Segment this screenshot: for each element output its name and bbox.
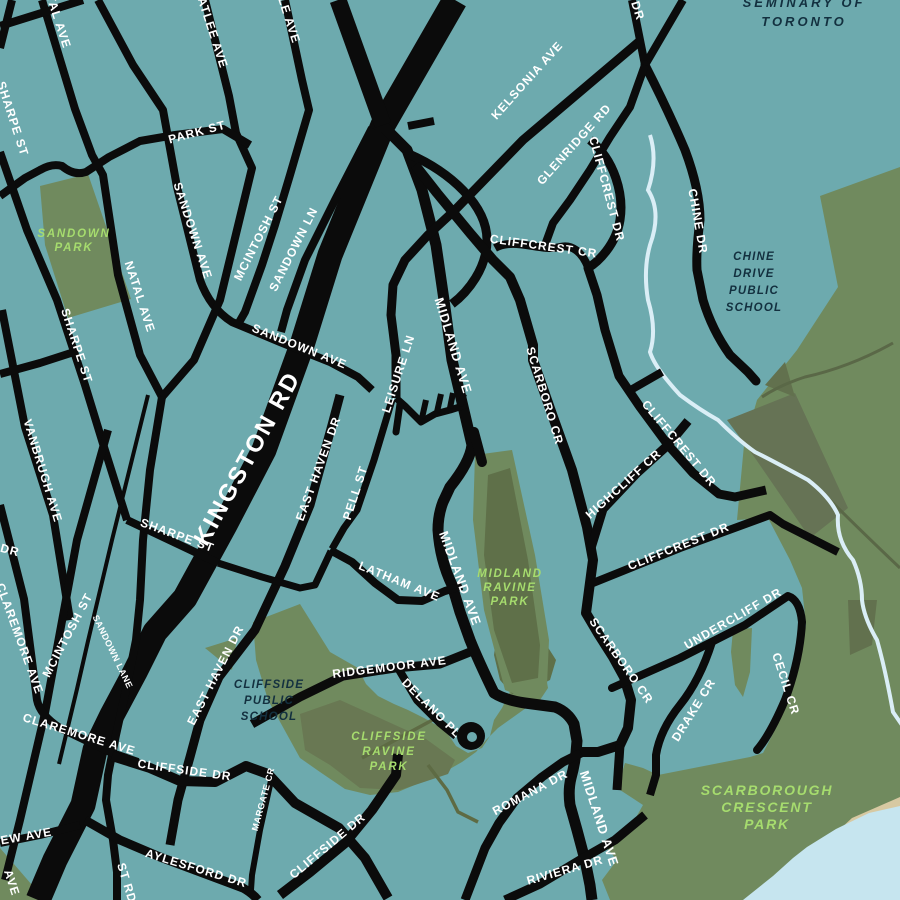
svg-text:PARK: PARK xyxy=(370,761,409,773)
svg-text:PUBLIC: PUBLIC xyxy=(244,695,294,707)
svg-text:RAVINE: RAVINE xyxy=(362,746,415,758)
svg-text:SEMINARY OF: SEMINARY OF xyxy=(743,0,866,10)
svg-text:CHINE: CHINE xyxy=(733,251,775,263)
svg-text:PARK: PARK xyxy=(491,596,530,608)
svg-text:SANDOWN: SANDOWN xyxy=(37,228,110,240)
svg-text:SCARBOROUGH: SCARBOROUGH xyxy=(701,782,834,798)
svg-text:SCHOOL: SCHOOL xyxy=(241,711,297,723)
svg-text:CRESCENT: CRESCENT xyxy=(721,799,812,815)
svg-text:TORONTO: TORONTO xyxy=(761,14,847,29)
svg-text:RAVINE: RAVINE xyxy=(483,582,536,594)
svg-text:PUBLIC: PUBLIC xyxy=(729,285,779,297)
svg-text:DRIVE: DRIVE xyxy=(733,268,774,280)
svg-text:MIDLAND: MIDLAND xyxy=(477,568,543,580)
svg-text:PARK: PARK xyxy=(55,242,94,254)
svg-text:PARK: PARK xyxy=(744,816,790,832)
svg-text:CLIFFSIDE: CLIFFSIDE xyxy=(351,731,427,743)
svg-text:CLIFFSIDE: CLIFFSIDE xyxy=(234,679,304,691)
svg-text:SCHOOL: SCHOOL xyxy=(726,302,782,314)
